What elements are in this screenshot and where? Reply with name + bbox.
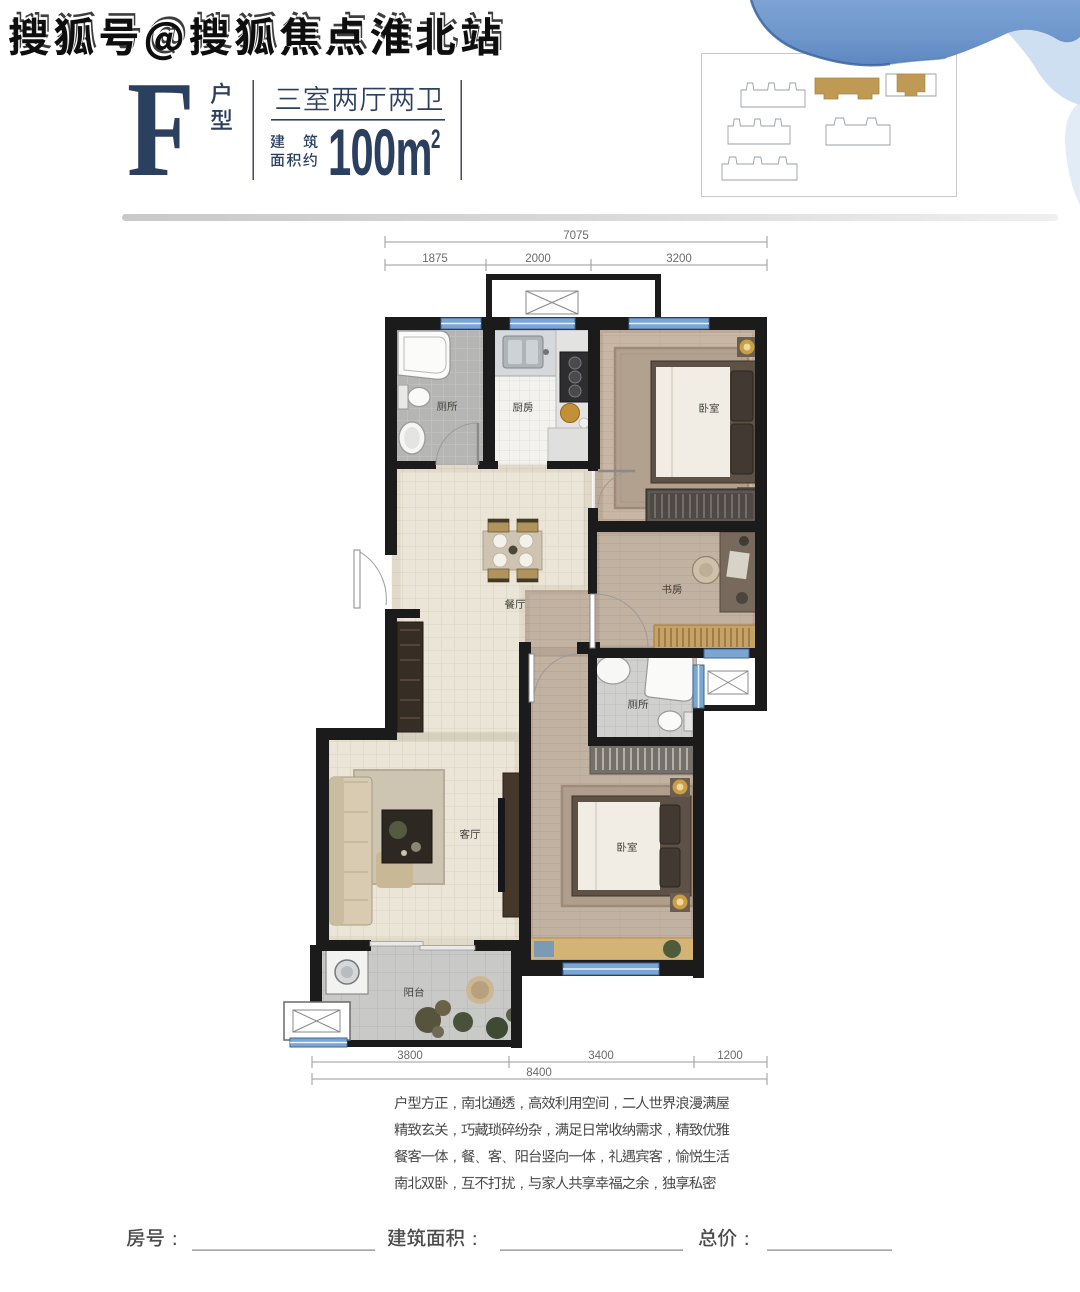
svg-text:7075: 7075: [563, 230, 589, 242]
svg-text:1200: 1200: [717, 1050, 743, 1062]
svg-text:1875: 1875: [422, 253, 448, 265]
svg-text:F: F: [127, 53, 195, 205]
svg-text:3200: 3200: [666, 253, 692, 265]
svg-text:3400: 3400: [588, 1050, 614, 1062]
svg-text:100m: 100m: [328, 115, 432, 189]
svg-text:3800: 3800: [397, 1050, 423, 1062]
svg-text:8400: 8400: [526, 1067, 552, 1079]
svg-text:2: 2: [431, 124, 440, 154]
svg-text:2000: 2000: [525, 253, 551, 265]
